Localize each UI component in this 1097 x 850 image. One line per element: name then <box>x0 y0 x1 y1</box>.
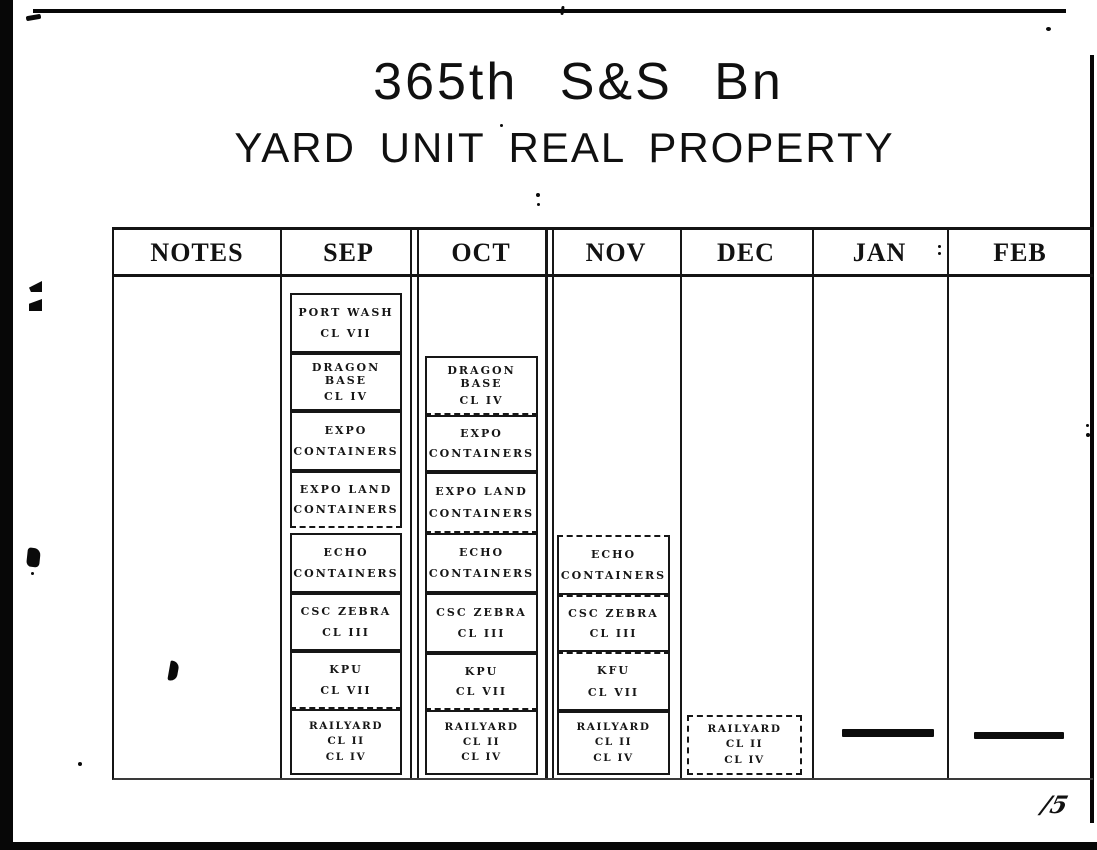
entry-oct-expo-land-containers: EXPO LAND CONTAINERS <box>425 472 538 533</box>
col-header-feb: FEB <box>947 230 1093 274</box>
scan-border-left <box>0 0 13 846</box>
entry-line: CL VII <box>456 685 507 698</box>
scan-border-bottom <box>0 842 1097 850</box>
entry-line: CL IV <box>326 750 366 765</box>
entry-oct-railyard: RAILYARD CL II CL IV <box>425 710 538 775</box>
entry-line: CONTAINERS <box>429 447 534 460</box>
scan-artifact <box>29 299 42 311</box>
scan-artifact <box>78 762 82 766</box>
entry-line: CONTAINERS <box>293 445 398 458</box>
entry-line: ECHO <box>591 548 636 561</box>
entry-line: CONTAINERS <box>293 567 398 580</box>
column-separator <box>417 230 419 778</box>
entry-line: CONTAINERS <box>429 567 534 580</box>
entry-line: KPU <box>465 665 498 678</box>
entry-dec-railyard: RAILYARD CL II CL IV <box>687 715 802 775</box>
entry-line: EXPO LAND <box>300 483 392 496</box>
scan-artifact <box>1086 424 1089 427</box>
col-header-jan: JAN <box>812 230 947 274</box>
column-separator <box>552 230 554 778</box>
entry-line: CL VII <box>320 684 371 697</box>
entry-sep-dragon-base: DRAGON BASE CL IV <box>290 353 402 411</box>
col-header-dec: DEC <box>680 230 812 274</box>
entry-line: CSC ZEBRA <box>436 606 527 619</box>
entry-line: CL II <box>726 737 763 752</box>
entry-line: RAILYARD <box>576 720 650 735</box>
entry-line: CL IV <box>724 753 764 768</box>
col-header-sep: SEP <box>280 230 417 274</box>
col-header-nov: NOV <box>552 230 680 274</box>
entry-line: CONTAINERS <box>429 507 534 520</box>
entry-line: EXPO <box>460 427 503 440</box>
scan-border-top <box>33 9 1066 13</box>
page-subtitle: YARD UNIT REAL PROPERTY <box>16 124 1097 172</box>
entry-oct-echo-containers: ECHO CONTAINERS <box>425 533 538 593</box>
entry-nov-csc-zebra: CSC ZEBRA CL III <box>557 595 670 652</box>
column-separator <box>545 230 548 778</box>
entry-line: CL VII <box>320 327 371 340</box>
ink-mark <box>167 660 179 681</box>
entry-line: ECHO <box>323 546 368 559</box>
scan-artifact <box>560 6 564 15</box>
entry-oct-dragon-base: DRAGON BASE CL IV <box>425 356 538 415</box>
jan-schedule-bar <box>842 729 934 737</box>
entry-line: CL II <box>595 735 632 750</box>
col-header-notes: NOTES <box>114 230 280 274</box>
scan-artifact <box>26 547 41 567</box>
entry-line: CL VII <box>588 686 639 699</box>
scanned-document-page: 365th S&S Bn YARD UNIT REAL PROPERTY NOT… <box>0 0 1097 850</box>
entry-line: KPU <box>329 663 362 676</box>
entry-oct-kpu: KPU CL VII <box>425 653 538 710</box>
entry-nov-railyard: RAILYARD CL II CL IV <box>557 711 670 775</box>
entry-sep-kpu: KPU CL VII <box>290 651 402 709</box>
scan-artifact <box>1046 27 1051 31</box>
entry-oct-expo-containers: EXPO CONTAINERS <box>425 415 538 472</box>
entry-line: DRAGON BASE <box>293 361 399 387</box>
column-separator <box>947 230 949 778</box>
entry-nov-kfu: KFU CL VII <box>557 652 670 711</box>
entry-line: DRAGON BASE <box>428 364 535 390</box>
scan-artifact <box>938 252 941 255</box>
entry-line: CL II <box>463 735 500 750</box>
entry-line: CL II <box>327 734 364 749</box>
schedule-table: NOTES SEP OCT NOV DEC JAN FEB PORT WASH … <box>112 227 1093 780</box>
entry-line: CSC ZEBRA <box>568 607 659 620</box>
entry-sep-expo-land-containers: EXPO LAND CONTAINERS <box>290 471 402 528</box>
entry-sep-port-wash: PORT WASH CL VII <box>290 293 402 353</box>
scan-artifact <box>29 281 42 292</box>
entry-line: PORT WASH <box>298 306 393 319</box>
entry-line: CL IV <box>461 750 501 765</box>
feb-schedule-bar <box>974 732 1064 739</box>
scan-artifact <box>500 124 503 127</box>
entry-sep-railyard: RAILYARD CL II CL IV <box>290 709 402 775</box>
entry-line: CL IV <box>593 751 633 766</box>
scan-artifact <box>26 14 42 22</box>
column-separator <box>280 230 282 778</box>
entry-line: RAILYARD <box>309 719 383 734</box>
entry-line: CONTAINERS <box>293 503 398 516</box>
page-title: 365th S&S Bn <box>30 52 1097 112</box>
entry-line: CL III <box>458 627 506 640</box>
column-separator <box>812 230 814 778</box>
entry-line: CSC ZEBRA <box>301 605 392 618</box>
scan-artifact <box>537 203 540 206</box>
entry-sep-csc-zebra: CSC ZEBRA CL III <box>290 593 402 651</box>
entry-line: ECHO <box>459 546 504 559</box>
entry-line: CL IV <box>324 390 368 403</box>
page-number: /5 <box>1038 790 1071 819</box>
entry-nov-echo-containers: ECHO CONTAINERS <box>557 535 670 595</box>
column-separator <box>410 230 412 778</box>
entry-line: KFU <box>597 664 630 677</box>
entry-line: CL III <box>590 627 638 640</box>
entry-sep-echo-containers: ECHO CONTAINERS <box>290 533 402 593</box>
scan-artifact <box>938 245 941 248</box>
entry-line: CONTAINERS <box>561 569 666 582</box>
entry-line: RAILYARD <box>707 722 781 737</box>
col-header-oct: OCT <box>417 230 545 274</box>
entry-line: EXPO LAND <box>435 485 527 498</box>
column-separator <box>680 230 682 778</box>
scan-artifact <box>536 193 540 197</box>
entry-line: CL IV <box>460 394 504 407</box>
entry-oct-csc-zebra: CSC ZEBRA CL III <box>425 593 538 653</box>
scan-artifact <box>1086 433 1090 437</box>
entry-line: EXPO <box>325 424 368 437</box>
entry-line: CL III <box>322 626 370 639</box>
entry-sep-expo-containers: EXPO CONTAINERS <box>290 411 402 471</box>
entry-line: RAILYARD <box>444 720 518 735</box>
scan-artifact <box>31 572 34 575</box>
